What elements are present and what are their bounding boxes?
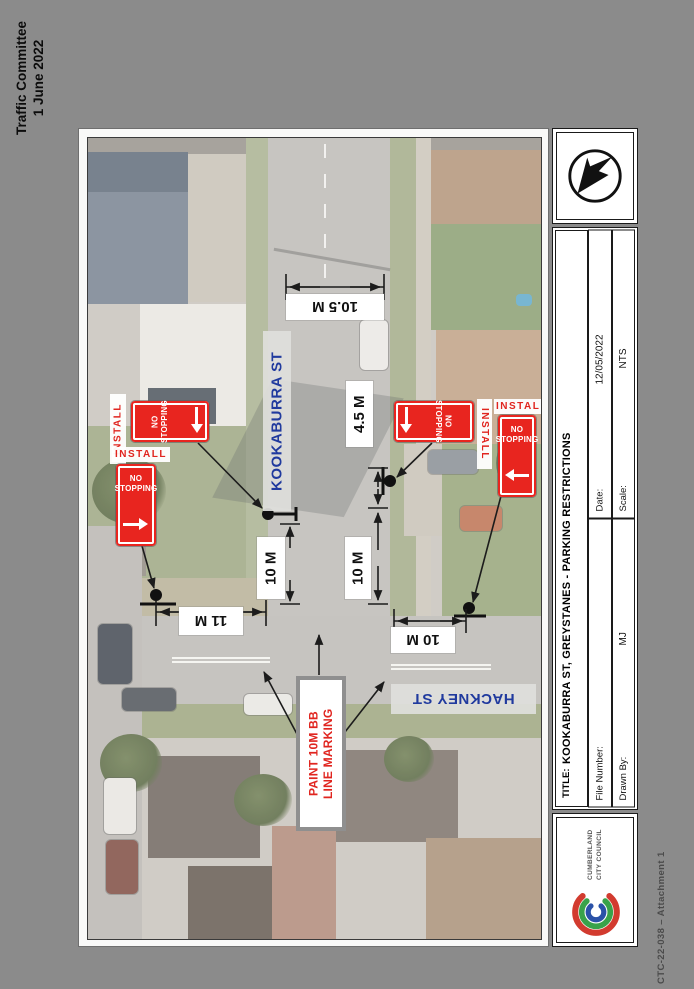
council-name-line1: CUMBERLAND (587, 829, 596, 880)
north-arrow-icon (564, 145, 626, 207)
scale-cell: Scale: NTS (612, 230, 635, 519)
dim-west-no-stopping-text: 10 M (263, 551, 280, 584)
dim-east-offset-text: 4.5 M (351, 395, 368, 433)
dim-road-width: 10.5 M (286, 294, 384, 320)
sign-3-line1: NO (444, 415, 453, 427)
post-ticks (140, 467, 486, 616)
dim-east-no-stopping: 10 M (345, 537, 371, 599)
council-logo-group: CUMBERLAND CITY COUNCIL (561, 822, 631, 946)
sign-posts (150, 475, 475, 614)
no-stopping-sign-4: NO STOPPING (498, 415, 536, 497)
install-label-3: INSTALL (477, 399, 492, 469)
kookaburra-st-text: KOOKABURRA ST (269, 351, 286, 490)
paint-note-line1: PAINT 10M BB (307, 711, 321, 796)
sign-3-arrow-shaft (405, 407, 408, 425)
dim-hackney-west-text: 11 M (195, 613, 228, 630)
sign-1-arrow-down-icon (191, 424, 203, 433)
committee-note-line2: 1 June 2022 (31, 8, 48, 148)
date-value: 12/05/2022 (595, 335, 606, 385)
drawn-by-value: MJ (618, 631, 629, 644)
no-stopping-sign-1: NO STOPPING (131, 401, 209, 442)
attachment-reference: CTC-22-038 – Attachment 1 (656, 832, 673, 984)
sign-4-text: NO STOPPING (500, 422, 534, 448)
committee-note: Traffic Committee 1 June 2022 (14, 8, 60, 148)
sign-3-text: NO STOPPING (418, 403, 468, 440)
sign-2-text: NO STOPPING (118, 471, 154, 497)
street-label-kookaburra: KOOKABURRA ST (263, 331, 291, 511)
sign-4-line1: NO (511, 425, 523, 434)
attachment-reference-text: CTC-22-038 – Attachment 1 (656, 851, 667, 984)
install-label-2: INSTALL (112, 447, 170, 462)
install-label-4: INSTALL (494, 399, 542, 414)
dim-west-no-stopping: 10 M (257, 537, 285, 599)
sign-4-line2: STOPPING (496, 435, 539, 444)
title-label: TITLE: (561, 768, 572, 798)
scale-value: NTS (618, 348, 629, 368)
paint-line-marking-note: PAINT 10M BB LINE MARKING (296, 676, 346, 831)
street-label-hackney: HACKNEY ST (391, 684, 536, 714)
file-number-label: File Number: (595, 746, 606, 800)
install-text-2: INSTALL (115, 449, 167, 460)
paint-note-line2: LINE MARKING (321, 708, 335, 798)
title-block-table: TITLE: KOOKABURRA ST, GREYSTANES - PARKI… (552, 227, 638, 810)
dim-hackney-west: 11 M (179, 607, 243, 635)
council-name-line2: CITY COUNCIL (596, 829, 605, 880)
sign-4-arrow-shaft (513, 474, 529, 477)
no-stopping-sign-3: NO STOPPING (394, 401, 474, 442)
sign-2-arrow-right-icon (139, 518, 148, 530)
drawn-by-cell: Drawn By: MJ (612, 519, 635, 808)
sign-2-arrow-shaft (123, 523, 139, 526)
sign-1-line2: STOPPING (160, 400, 169, 443)
council-logo-icon (570, 886, 622, 938)
sign-3-arrow-down-icon (400, 424, 412, 433)
sign-2-line2: STOPPING (115, 484, 158, 493)
dim-road-width-text: 10.5 M (312, 299, 358, 316)
dimension-lines (156, 274, 466, 633)
hackney-st-text: HACKNEY ST (412, 691, 514, 708)
date-label: Date: (595, 489, 606, 512)
dim-east-offset: 4.5 M (346, 381, 373, 447)
date-cell: Date: 12/05/2022 (588, 230, 612, 519)
council-logo-box: CUMBERLAND CITY COUNCIL (552, 813, 638, 947)
drawing-page: Traffic Committee 1 June 2022 (0, 0, 694, 989)
drawn-by-label: Drawn By: (618, 756, 629, 800)
dim-east-no-stopping-text: 10 M (350, 551, 367, 584)
sign-3-line2: STOPPING (434, 400, 443, 443)
map-frame: KOOKABURRA ST HACKNEY ST 10.5 M 4.5 M 10… (78, 128, 549, 947)
install-text-3: INSTALL (479, 408, 490, 460)
install-text-4: INSTALL (496, 401, 542, 412)
dim-hackney-east-text: 10 M (406, 632, 439, 649)
sign-1-text: NO STOPPING (135, 403, 185, 440)
sign-4-arrow-left-icon (505, 469, 514, 481)
sign-1-arrow-shaft (195, 407, 198, 425)
dim-hackney-east: 10 M (391, 627, 455, 653)
aerial-photo: KOOKABURRA ST HACKNEY ST 10.5 M 4.5 M 10… (87, 137, 542, 940)
north-arrow-box (552, 128, 638, 224)
title-cell: TITLE: KOOKABURRA ST, GREYSTANES - PARKI… (555, 230, 588, 807)
sign-1-line1: NO (150, 415, 159, 427)
file-number-cell: File Number: (588, 519, 612, 808)
committee-note-line1: Traffic Committee (14, 8, 31, 148)
scale-label: Scale: (618, 485, 629, 511)
no-stopping-sign-2: NO STOPPING (116, 464, 156, 546)
title-block: TITLE: KOOKABURRA ST, GREYSTANES - PARKI… (552, 128, 638, 947)
sign-2-line1: NO (130, 474, 142, 483)
drawing-title: KOOKABURRA ST, GREYSTANES - PARKING REST… (561, 433, 573, 764)
council-name: CUMBERLAND CITY COUNCIL (587, 829, 605, 880)
